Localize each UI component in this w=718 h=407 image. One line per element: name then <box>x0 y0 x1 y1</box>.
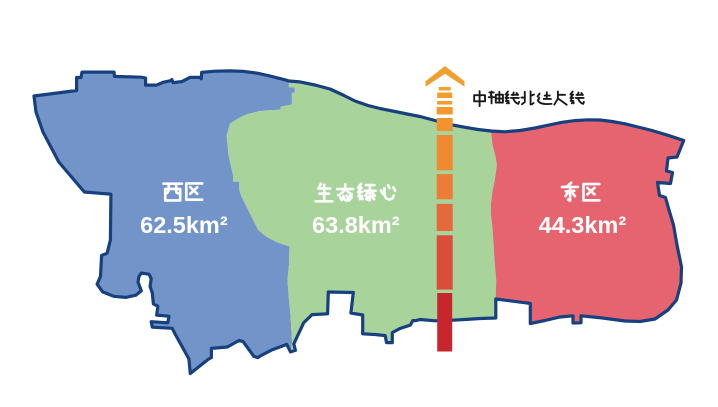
svg-text:63.8km²: 63.8km² <box>312 212 400 238</box>
svg-text:44.3km²: 44.3km² <box>539 212 627 238</box>
svg-text:62.5km²: 62.5km² <box>140 212 228 238</box>
